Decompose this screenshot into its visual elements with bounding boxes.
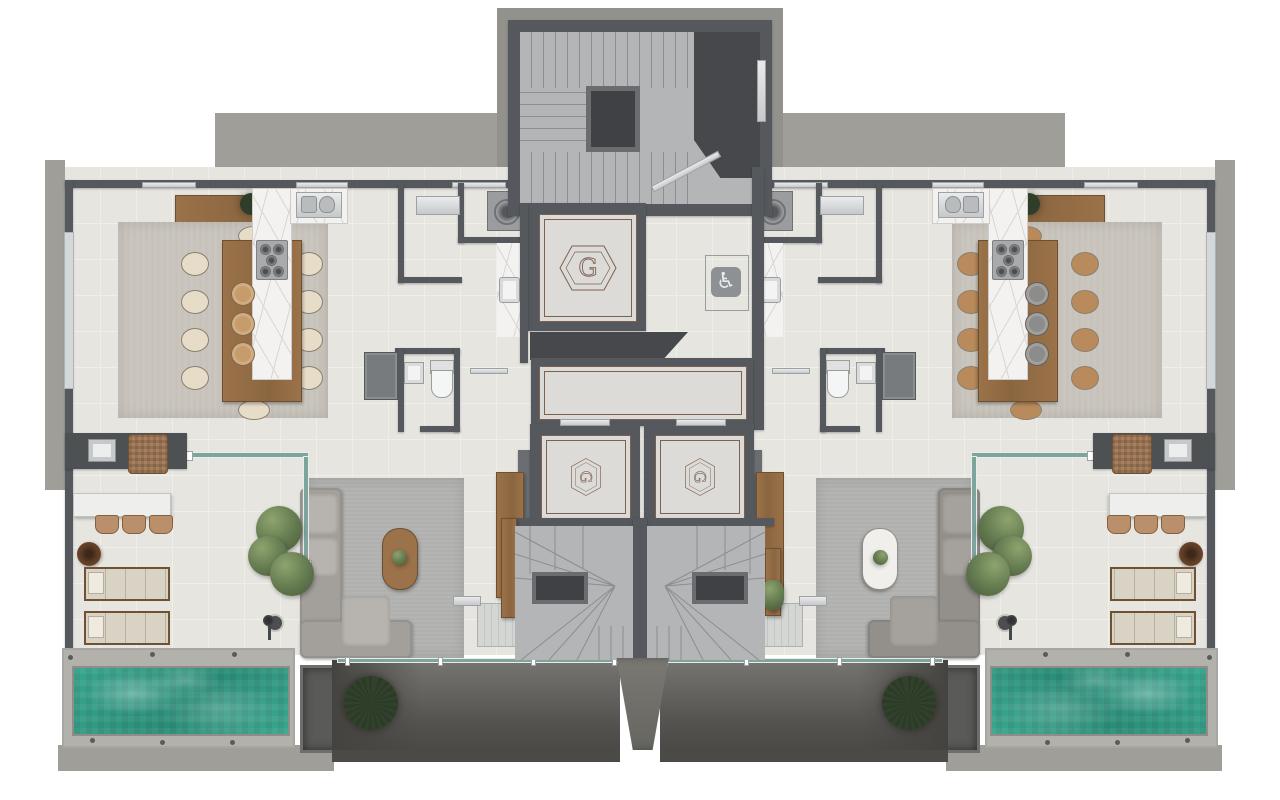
burner	[1009, 266, 1020, 277]
elevator-monogram-graphic: G	[665, 437, 735, 517]
deck-light	[90, 738, 95, 743]
stair-plant-right	[762, 580, 784, 610]
glass-jamb	[186, 451, 193, 461]
terrace-tree	[962, 506, 1032, 596]
palm-plant	[882, 676, 936, 730]
kitchen-sink-bowl-right	[945, 196, 961, 213]
elevator-right-floor: G	[655, 435, 745, 519]
pool-shower-head	[1006, 615, 1017, 626]
fire-pit-table	[1179, 542, 1203, 566]
dining-chair	[181, 328, 209, 352]
kitchen-stool	[1025, 342, 1049, 366]
burner	[273, 244, 284, 255]
laundry-wall-left	[876, 183, 882, 283]
bar-chair	[122, 515, 146, 534]
lower-terrace-edge	[332, 750, 620, 762]
outdoor-sink	[1164, 439, 1192, 462]
laundry-shelf	[820, 196, 864, 215]
powder-wall-stub	[820, 426, 860, 432]
deck-light	[232, 652, 237, 657]
laundry-wall-bottom	[398, 277, 462, 283]
kitchen-sink-bowl-left	[301, 196, 317, 213]
tree-canopy	[966, 552, 1010, 596]
terrace-tree	[248, 506, 318, 596]
lounger-pillow	[1176, 616, 1192, 638]
bar-table	[1109, 493, 1207, 517]
elevator-monogram-letter: G	[577, 471, 596, 484]
elevator-monogram-graphic: G	[551, 437, 621, 517]
toilet-bowl	[827, 370, 849, 398]
unit-top-wall	[760, 180, 1215, 188]
dining-chair	[1071, 328, 1099, 352]
dining-chair	[181, 252, 209, 276]
core-dark-slab	[530, 332, 688, 360]
bar-chair	[95, 515, 119, 534]
towel-rail	[470, 368, 508, 374]
stair-void	[586, 86, 640, 152]
coffee-table-plant	[873, 550, 888, 565]
fire-pit-table	[77, 542, 101, 566]
bar-chair	[1107, 515, 1131, 534]
swimming-pool	[72, 666, 290, 736]
laundry-shelf	[416, 196, 460, 215]
elevator-threshold	[676, 419, 726, 426]
kitchen-stool	[231, 312, 255, 336]
lounger-pillow	[88, 572, 104, 594]
elevator-monogram-letter: G	[578, 254, 597, 282]
stair-divider-wall	[633, 518, 647, 664]
burner	[260, 244, 271, 255]
rattan-lounge-chair	[128, 434, 168, 474]
hall-closet	[882, 352, 916, 400]
glass-wall-horizontal	[190, 453, 308, 457]
stair-void-right	[692, 572, 748, 604]
burner	[260, 266, 271, 277]
sofa-chaise	[890, 596, 938, 646]
elevator-monogram-graphic: G	[540, 215, 636, 321]
swimming-pool	[990, 666, 1208, 736]
top-wall-window-1	[142, 182, 196, 188]
deck-light	[1207, 655, 1212, 660]
wheelchair-icon: ♿	[711, 267, 741, 297]
bar-chair	[1161, 515, 1185, 534]
deck-light	[1125, 652, 1130, 657]
cooktop	[256, 240, 288, 280]
deck-light	[1185, 738, 1190, 743]
dining-chair-end-bottom	[238, 400, 270, 420]
lobby-mat	[539, 366, 747, 420]
powder-basin	[404, 362, 424, 384]
deck-light	[160, 740, 165, 745]
balustrade-post	[837, 657, 842, 666]
top-wall-window-1	[1084, 182, 1138, 188]
stone-ledge	[453, 596, 481, 606]
laundry-wall-bottom	[818, 277, 882, 283]
towel-rail	[772, 368, 810, 374]
burner	[996, 266, 1007, 277]
powder-wall-right	[454, 348, 460, 432]
elevator-threshold	[560, 419, 610, 426]
elevator-top-floor: G	[539, 214, 637, 322]
sofa-chaise	[342, 596, 390, 646]
lower-terrace-edge	[660, 750, 948, 762]
kitchen-stool	[1025, 312, 1049, 336]
balustrade-post	[345, 657, 350, 666]
burner	[273, 266, 284, 277]
dining-chair	[1071, 252, 1099, 276]
pool-shower-stem	[268, 624, 271, 640]
bar-table	[73, 493, 171, 517]
elevator-left-floor: G	[541, 435, 631, 519]
balustrade-post	[438, 657, 443, 666]
outdoor-sink	[88, 439, 116, 462]
pool-shower-stem	[1009, 624, 1012, 640]
bath-sink	[499, 277, 520, 303]
burner	[1003, 255, 1014, 266]
dining-chair	[181, 290, 209, 314]
glass-wall-horizontal	[972, 453, 1090, 457]
toilet-bowl	[431, 370, 453, 398]
bar-chair	[1134, 515, 1158, 534]
kitchen-stool	[231, 282, 255, 306]
balustrade-post	[930, 657, 935, 666]
kitchen-counter-vertical	[988, 188, 1028, 380]
burner	[266, 255, 277, 266]
powder-wall-top	[395, 348, 460, 354]
pool-shower-head	[263, 615, 274, 626]
kitchen-stool	[1025, 282, 1049, 306]
floor-plan-scene: G ♿ G G	[0, 0, 1280, 800]
lounger-pillow	[1176, 572, 1192, 594]
dining-chair	[181, 366, 209, 390]
elevator-monogram-letter: G	[691, 471, 710, 484]
deck-light	[1045, 740, 1050, 745]
burner	[996, 244, 1007, 255]
powder-basin	[856, 362, 876, 384]
wheelchair-glyph: ♿	[716, 271, 736, 293]
powder-wall-stub	[420, 426, 460, 432]
kitchen-stool	[231, 342, 255, 366]
left-wall-window	[64, 232, 74, 389]
burner	[1009, 244, 1020, 255]
palm-plant	[344, 676, 398, 730]
dining-chair	[1071, 290, 1099, 314]
dining-chair	[1071, 366, 1099, 390]
kitchen-counter-vertical	[252, 188, 292, 380]
hall-closet	[364, 352, 398, 400]
core-wall-right	[752, 167, 764, 430]
bar-chair	[149, 515, 173, 534]
coffee-table-plant	[392, 550, 407, 565]
cooktop	[992, 240, 1024, 280]
powder-wall-left	[398, 348, 404, 432]
core-wall-left	[520, 203, 528, 363]
tree-canopy	[270, 552, 314, 596]
deck-light	[68, 655, 73, 660]
dining-chair-end-bottom	[1010, 400, 1042, 420]
outdoor-kitchen-counter	[65, 433, 187, 469]
stair-treads-left	[520, 88, 588, 152]
stair-void-left	[532, 572, 588, 604]
kitchen-sink-bowl-left	[963, 196, 979, 213]
deck-light	[150, 652, 155, 657]
deck-light	[1043, 652, 1048, 657]
deck-light	[230, 740, 235, 745]
left-wall-window	[1206, 232, 1216, 389]
rattan-lounge-chair	[1112, 434, 1152, 474]
stone-ledge	[799, 596, 827, 606]
lounger-pillow	[88, 616, 104, 638]
laundry-wall-left	[398, 183, 404, 283]
stair-treads-upper	[520, 32, 694, 88]
shaft-side-panel	[757, 60, 766, 122]
kitchen-sink-bowl-right	[319, 196, 335, 213]
deck-light	[1115, 740, 1120, 745]
